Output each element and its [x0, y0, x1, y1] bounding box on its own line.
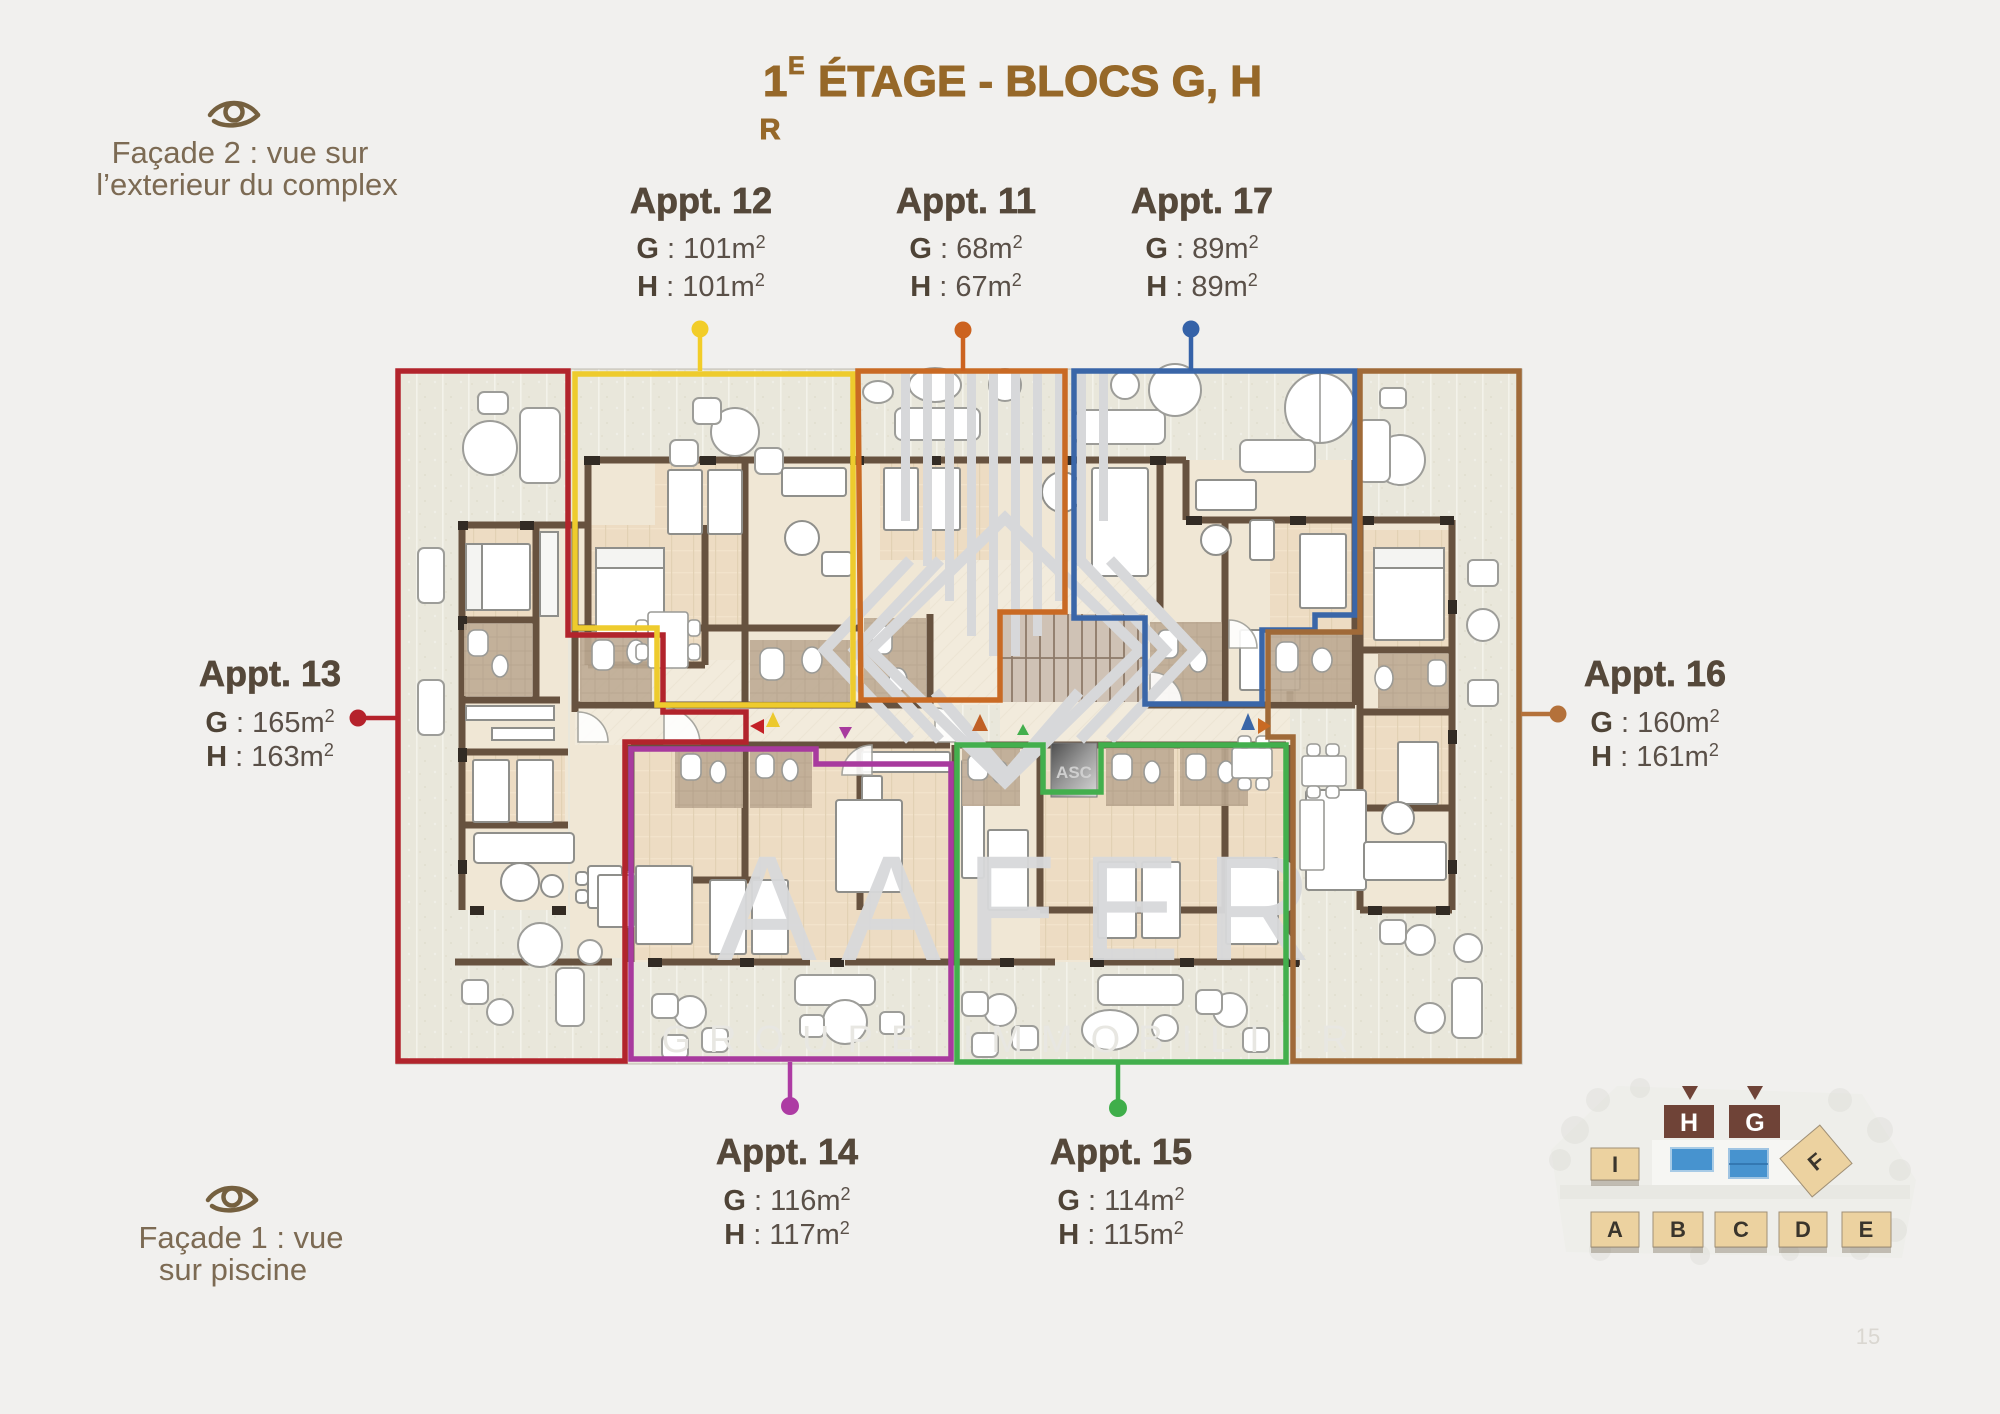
svg-text:G : 114m2: G : 114m2: [1057, 1184, 1184, 1217]
svg-text:Façade 1 : vue: Façade 1 : vue: [138, 1220, 343, 1255]
svg-text:Façade 2 : vue sur: Façade 2 : vue sur: [112, 135, 369, 170]
svg-text:Appt. 12: Appt. 12: [630, 180, 772, 221]
svg-text:Appt. 17: Appt. 17: [1131, 180, 1273, 221]
svg-text:H : 89m2: H : 89m2: [1146, 270, 1258, 303]
svg-text:H: H: [1680, 1109, 1698, 1137]
svg-text:H : 101m2: H : 101m2: [637, 270, 765, 303]
svg-text:GROUPE IMMOBILIER: GROUPE IMMOBILIER: [661, 1019, 1366, 1061]
svg-text:15: 15: [1856, 1324, 1880, 1349]
svg-text:ASC: ASC: [1056, 763, 1092, 782]
svg-text:R: R: [760, 114, 781, 146]
svg-text:sur piscine: sur piscine: [159, 1252, 307, 1287]
svg-text:C: C: [1733, 1217, 1749, 1242]
svg-text:H : 163m2: H : 163m2: [206, 740, 334, 773]
svg-text:Appt. 14: Appt. 14: [716, 1131, 858, 1172]
svg-text:H : 115m2: H : 115m2: [1058, 1218, 1184, 1251]
svg-text:D: D: [1795, 1217, 1811, 1242]
svg-text:G : 116m2: G : 116m2: [723, 1184, 850, 1217]
svg-text:H : 67m2: H : 67m2: [910, 270, 1022, 303]
svg-text:Appt. 11: Appt. 11: [896, 180, 1036, 221]
svg-text:G : 160m2: G : 160m2: [1590, 706, 1719, 739]
svg-text:G : 101m2: G : 101m2: [636, 232, 765, 265]
svg-text:AAFER: AAFER: [717, 824, 1337, 992]
svg-text:H : 117m2: H : 117m2: [724, 1218, 850, 1251]
svg-text:1: 1: [763, 57, 787, 106]
svg-text:G : 165m2: G : 165m2: [205, 706, 334, 739]
svg-text:B: B: [1670, 1217, 1686, 1242]
svg-text:Appt. 13: Appt. 13: [199, 653, 341, 694]
svg-text:G : 89m2: G : 89m2: [1145, 232, 1258, 265]
svg-text:G : 68m2: G : 68m2: [909, 232, 1022, 265]
svg-text:ÉTAGE - BLOCS G, H: ÉTAGE - BLOCS G, H: [818, 56, 1262, 106]
svg-text:Appt. 15: Appt. 15: [1050, 1131, 1192, 1172]
svg-text:I: I: [1612, 1152, 1618, 1177]
svg-text:Appt. 16: Appt. 16: [1584, 653, 1726, 694]
svg-text:l’exterieur du complex: l’exterieur du complex: [96, 167, 398, 202]
svg-text:E: E: [1859, 1217, 1874, 1242]
svg-text:G: G: [1745, 1109, 1764, 1137]
svg-text:A: A: [1607, 1217, 1623, 1242]
svg-text:E: E: [788, 52, 805, 80]
svg-text:H : 161m2: H : 161m2: [1591, 740, 1719, 773]
